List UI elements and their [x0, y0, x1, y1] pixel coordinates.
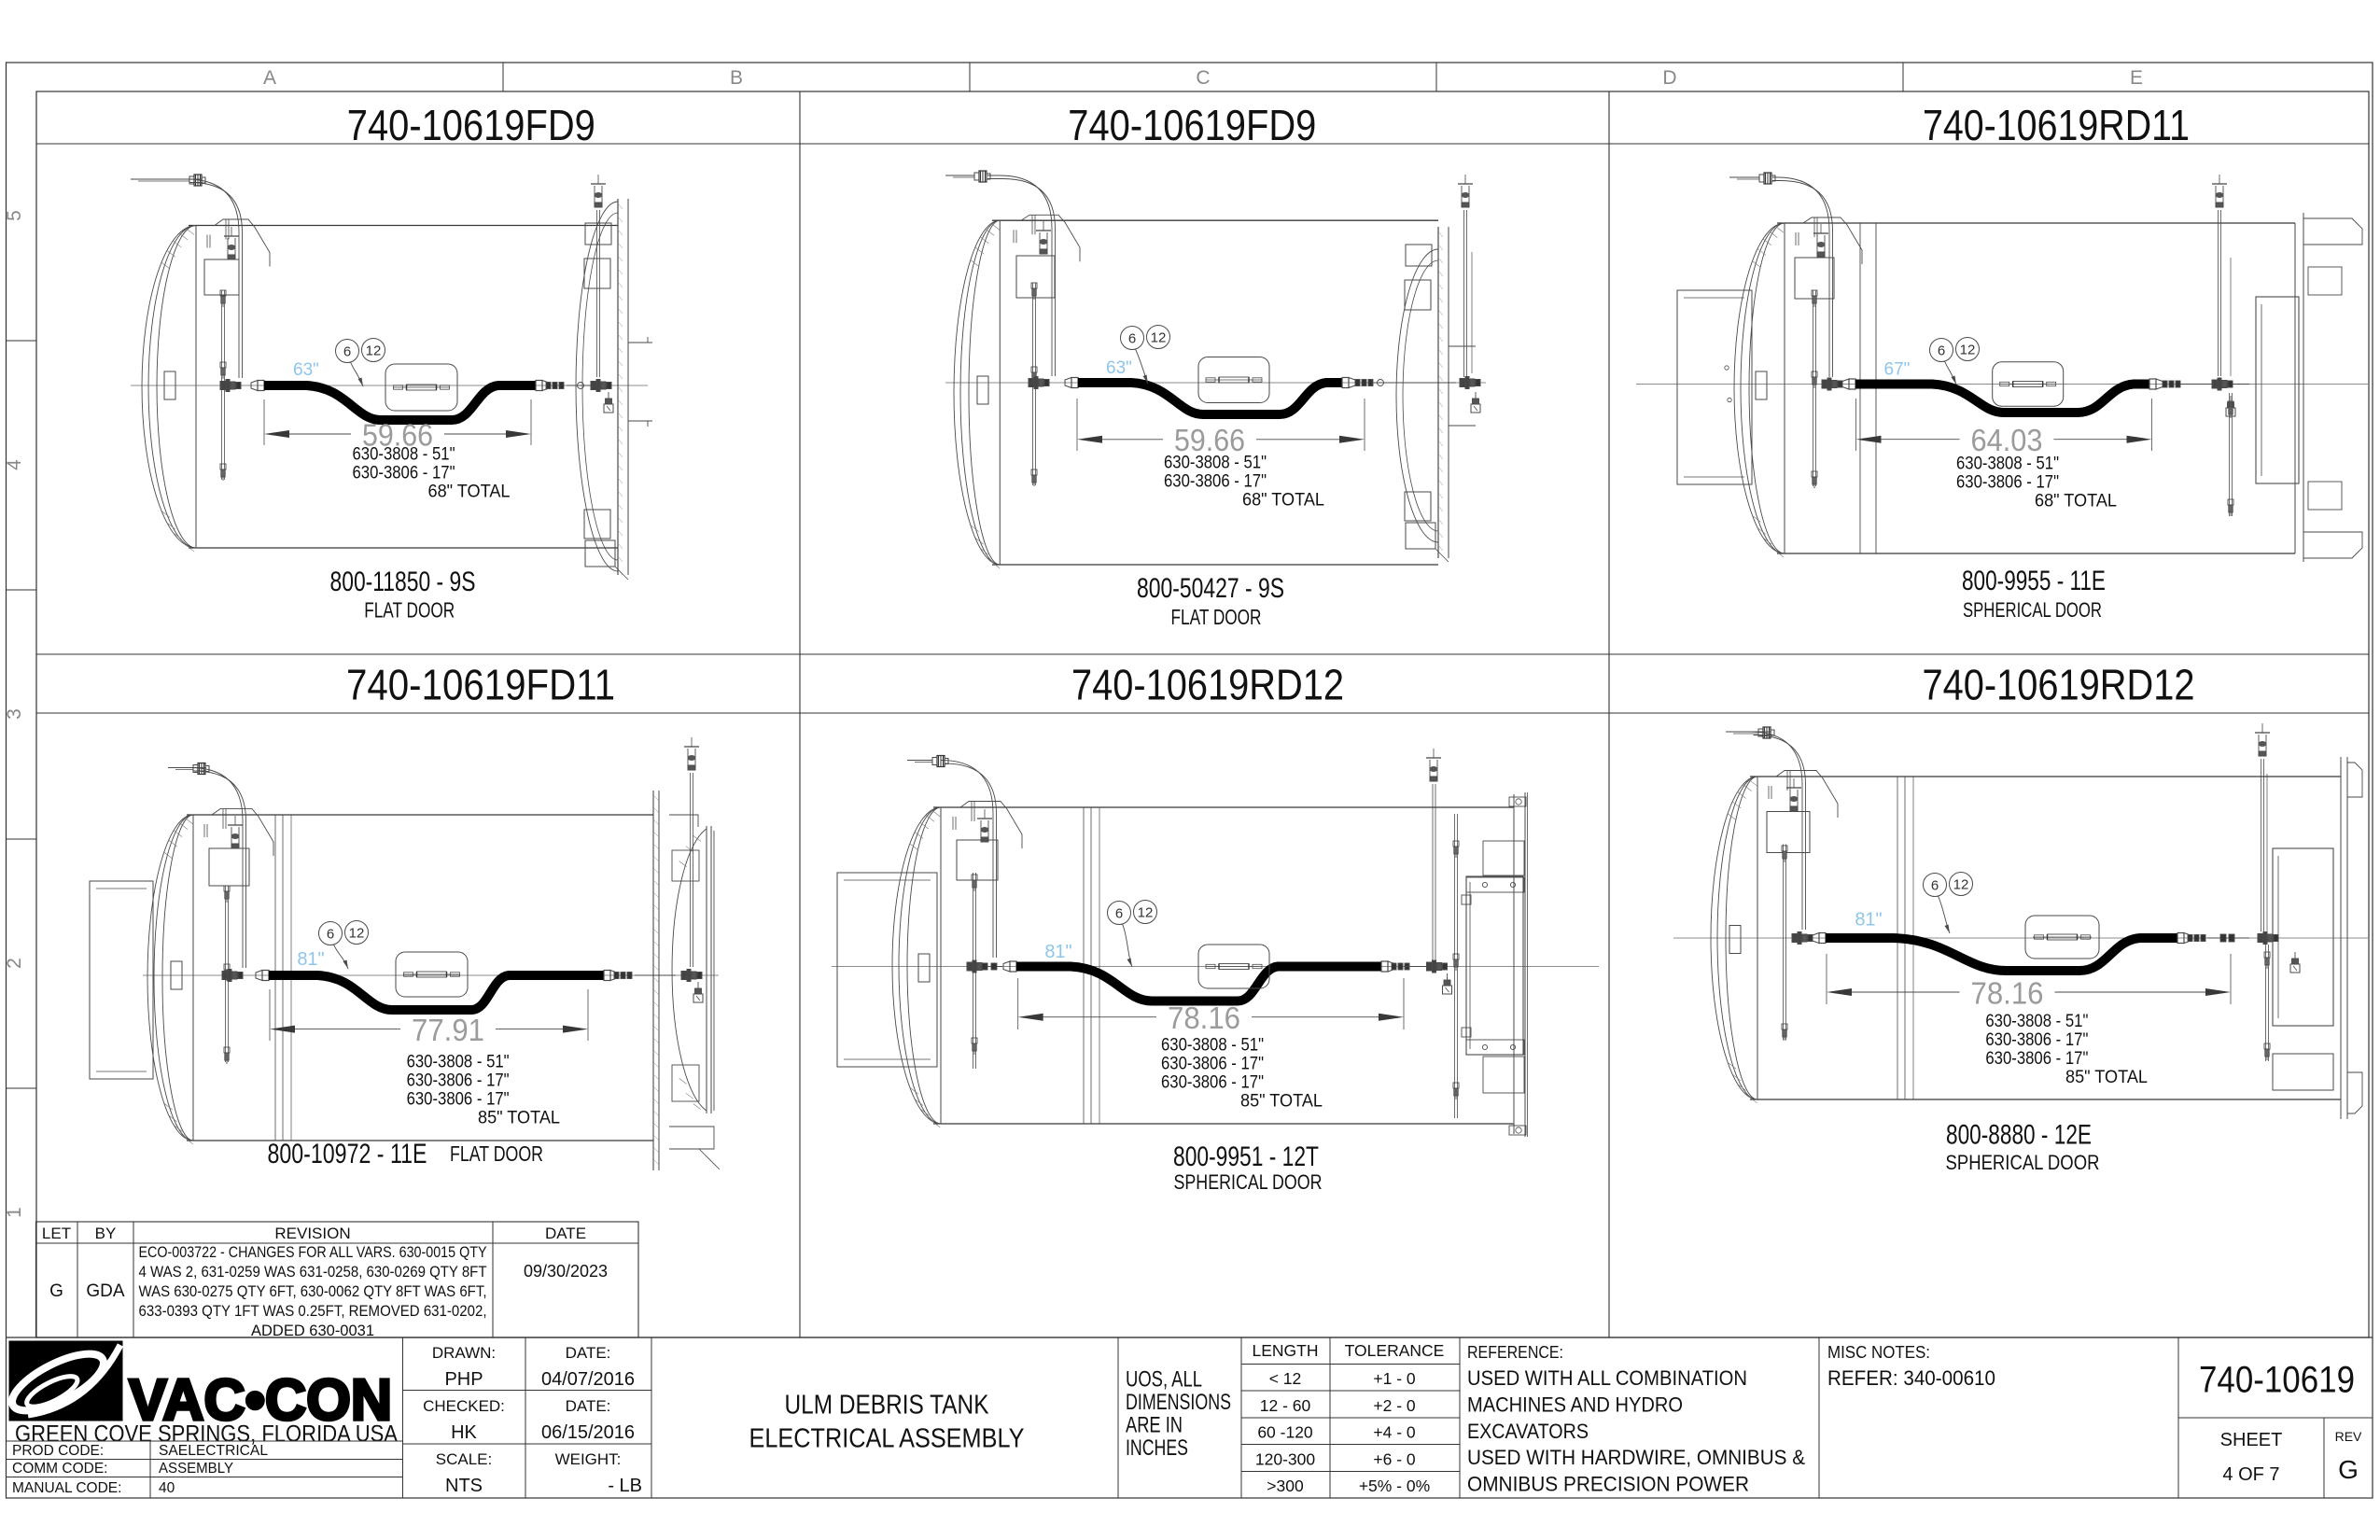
svg-text:LET: LET — [42, 1225, 71, 1242]
svg-text:CHECKED:: CHECKED: — [423, 1397, 505, 1415]
svg-text:SCALE:: SCALE: — [436, 1450, 492, 1468]
svg-text:800-8880 - 12E: 800-8880 - 12E — [1946, 1120, 2092, 1151]
svg-text:740-10619FD9: 740-10619FD9 — [1068, 101, 1316, 149]
svg-text:WAS 630-0275 QTY 6FT, 630-0062: WAS 630-0275 QTY 6FT, 630-0062 QTY 8FT W… — [139, 1283, 487, 1300]
svg-text:12 - 60: 12 - 60 — [1260, 1396, 1311, 1415]
svg-text:ELECTRICAL ASSEMBLY: ELECTRICAL ASSEMBLY — [749, 1424, 1025, 1454]
svg-text:78.16: 78.16 — [1168, 1001, 1240, 1035]
svg-text:630-3808 - 51": 630-3808 - 51" — [1956, 455, 2059, 474]
svg-text:630-3806 - 17": 630-3806 - 17" — [407, 1071, 510, 1091]
svg-text:UOS, ALL: UOS, ALL — [1126, 1367, 1202, 1393]
svg-text:630-3806 - 17": 630-3806 - 17" — [407, 1090, 510, 1110]
svg-text:INCHES: INCHES — [1126, 1435, 1188, 1461]
svg-text:630-3808 - 51": 630-3808 - 51" — [1161, 1036, 1264, 1056]
svg-text:ASSEMBLY: ASSEMBLY — [159, 1461, 233, 1477]
svg-text:6: 6 — [1128, 331, 1136, 347]
svg-text:630-3806 - 17": 630-3806 - 17" — [1985, 1030, 2088, 1050]
svg-text:DIMENSIONS: DIMENSIONS — [1126, 1390, 1231, 1415]
svg-text:630-3808 - 51": 630-3808 - 51" — [407, 1053, 510, 1072]
svg-text:12: 12 — [1151, 330, 1167, 346]
svg-text:OMNIBUS PRECISION POWER: OMNIBUS PRECISION POWER — [1467, 1473, 1749, 1496]
svg-text:04/07/2016: 04/07/2016 — [541, 1369, 635, 1390]
svg-text:800-9951 - 12T: 800-9951 - 12T — [1173, 1141, 1319, 1172]
svg-text:63": 63" — [1106, 358, 1132, 378]
svg-text:81": 81" — [297, 949, 324, 970]
svg-text:< 12: < 12 — [1269, 1369, 1302, 1388]
svg-text:USED WITH ALL COMBINATION: USED WITH ALL COMBINATION — [1467, 1366, 1747, 1390]
svg-text:A: A — [263, 67, 276, 89]
svg-text:EXCAVATORS: EXCAVATORS — [1467, 1420, 1589, 1443]
svg-text:633-0393 QTY 1FT WAS 0.25FT, R: 633-0393 QTY 1FT WAS 0.25FT, REMOVED 631… — [139, 1303, 487, 1320]
svg-text:77.91: 77.91 — [412, 1013, 484, 1047]
svg-text:FLAT DOOR: FLAT DOOR — [450, 1141, 543, 1166]
svg-text:40: 40 — [159, 1480, 175, 1496]
svg-text:WEIGHT:: WEIGHT: — [555, 1450, 622, 1468]
svg-text:67": 67" — [1884, 360, 1911, 380]
svg-text:D: D — [1662, 67, 1676, 89]
svg-text:FLAT DOOR: FLAT DOOR — [364, 598, 455, 623]
svg-text:- LB: - LB — [608, 1476, 642, 1496]
svg-text:5: 5 — [4, 210, 25, 221]
svg-text:68" TOTAL: 68" TOTAL — [428, 483, 511, 502]
svg-text:ARE IN: ARE IN — [1126, 1413, 1183, 1438]
svg-text:81": 81" — [1044, 942, 1071, 962]
svg-text:800-9955 - 11E: 800-9955 - 11E — [1962, 566, 2106, 596]
svg-text:SAELECTRICAL: SAELECTRICAL — [159, 1443, 268, 1459]
svg-text:SHEET: SHEET — [2220, 1430, 2283, 1450]
svg-text:120-300: 120-300 — [1255, 1449, 1315, 1468]
svg-text:REVISION: REVISION — [274, 1225, 350, 1242]
svg-text:PHP: PHP — [444, 1369, 483, 1390]
svg-text:REFERENCE:: REFERENCE: — [1467, 1343, 1563, 1362]
svg-text:12: 12 — [1960, 343, 1976, 358]
svg-text:800-10972 - 11E: 800-10972 - 11E — [268, 1139, 427, 1169]
svg-text:SPHERICAL DOOR: SPHERICAL DOOR — [1963, 598, 2102, 622]
svg-text:FLAT DOOR: FLAT DOOR — [1171, 605, 1262, 629]
svg-text:+1 - 0: +1 - 0 — [1373, 1369, 1416, 1388]
svg-text:85" TOTAL: 85" TOTAL — [1240, 1092, 1323, 1112]
svg-text:81": 81" — [1855, 910, 1882, 931]
svg-text:3: 3 — [4, 708, 25, 720]
svg-text:12: 12 — [1138, 905, 1154, 921]
svg-text:800-11850 - 9S: 800-11850 - 9S — [330, 567, 476, 597]
svg-text:740-10619FD11: 740-10619FD11 — [346, 661, 615, 709]
svg-text:G: G — [49, 1281, 63, 1301]
svg-text:740-10619RD12: 740-10619RD12 — [1923, 661, 2195, 709]
svg-text:MANUAL CODE:: MANUAL CODE: — [12, 1480, 121, 1496]
svg-text:LENGTH: LENGTH — [1253, 1341, 1319, 1360]
svg-text:740-10619: 740-10619 — [2199, 1360, 2355, 1401]
svg-text:DATE:: DATE: — [566, 1344, 611, 1362]
svg-text:6: 6 — [1931, 878, 1939, 894]
svg-text:B: B — [730, 67, 743, 89]
svg-text:REFER: 340-00610: REFER: 340-00610 — [1827, 1366, 1995, 1390]
svg-text:630-3806 - 17": 630-3806 - 17" — [353, 464, 455, 483]
svg-text:6: 6 — [1938, 343, 1945, 359]
svg-text:63": 63" — [293, 360, 319, 380]
svg-text:ADDED 630-0031: ADDED 630-0031 — [251, 1323, 374, 1339]
svg-text:DRAWN:: DRAWN: — [432, 1344, 496, 1362]
svg-text:800-50427 - 9S: 800-50427 - 9S — [1137, 573, 1284, 604]
svg-text:C: C — [1196, 67, 1210, 89]
svg-text:MACHINES AND HYDRO: MACHINES AND HYDRO — [1467, 1393, 1683, 1416]
svg-text:COMM CODE:: COMM CODE: — [12, 1461, 107, 1477]
svg-text:06/15/2016: 06/15/2016 — [541, 1422, 635, 1443]
svg-text:6: 6 — [327, 927, 334, 943]
svg-text:09/30/2023: 09/30/2023 — [524, 1262, 608, 1281]
svg-text:PROD CODE:: PROD CODE: — [12, 1443, 104, 1459]
svg-text:630-3808 - 51": 630-3808 - 51" — [353, 445, 455, 465]
svg-text:68" TOTAL: 68" TOTAL — [2035, 492, 2117, 511]
svg-text:+2 - 0: +2 - 0 — [1373, 1396, 1416, 1415]
svg-text:12: 12 — [349, 926, 365, 942]
svg-text:HK: HK — [451, 1422, 477, 1443]
svg-text:6: 6 — [1115, 906, 1123, 922]
svg-text:630-3808 - 51": 630-3808 - 51" — [1164, 454, 1267, 473]
svg-text:12: 12 — [1953, 877, 1969, 893]
svg-text:630-3806 - 17": 630-3806 - 17" — [1985, 1049, 2088, 1069]
svg-text:78.16: 78.16 — [1971, 975, 2044, 1010]
svg-text:TOLERANCE: TOLERANCE — [1345, 1341, 1445, 1360]
svg-text:630-3806 - 17": 630-3806 - 17" — [1956, 473, 2059, 493]
svg-text:68" TOTAL: 68" TOTAL — [1242, 491, 1324, 511]
svg-text:630-3808 - 51": 630-3808 - 51" — [1985, 1012, 2088, 1031]
svg-text:12: 12 — [366, 343, 382, 359]
svg-text:60 -120: 60 -120 — [1257, 1423, 1313, 1442]
svg-text:740-10619RD11: 740-10619RD11 — [1923, 101, 2190, 149]
svg-text:630-3806 - 17": 630-3806 - 17" — [1161, 1055, 1264, 1074]
svg-text:740-10619RD12: 740-10619RD12 — [1071, 661, 1344, 709]
svg-text:BY: BY — [95, 1225, 117, 1242]
svg-text:USED WITH HARDWIRE, OMNIBUS &: USED WITH HARDWIRE, OMNIBUS & — [1467, 1446, 1805, 1469]
svg-text:2: 2 — [4, 958, 25, 969]
svg-text:6: 6 — [343, 344, 351, 360]
svg-text:+6 - 0: +6 - 0 — [1373, 1449, 1416, 1468]
svg-text:G: G — [2338, 1455, 2359, 1484]
svg-text:64.03: 64.03 — [1971, 423, 2043, 457]
svg-text:+5% - 0%: +5% - 0% — [1359, 1477, 1430, 1495]
svg-text:630-3806 - 17": 630-3806 - 17" — [1164, 472, 1267, 492]
svg-text:4 WAS 2, 631-0259 WAS 631-0258: 4 WAS 2, 631-0259 WAS 631-0258, 630-0269… — [139, 1264, 487, 1281]
svg-text:85" TOTAL: 85" TOTAL — [478, 1109, 560, 1128]
svg-text:SPHERICAL DOOR: SPHERICAL DOOR — [1946, 1151, 2100, 1174]
svg-text:GDA: GDA — [86, 1281, 125, 1301]
svg-text:E: E — [2130, 67, 2143, 89]
svg-text:ULM DEBRIS TANK: ULM DEBRIS TANK — [785, 1390, 990, 1420]
svg-text:DATE: DATE — [545, 1225, 586, 1242]
svg-text:4: 4 — [4, 459, 25, 470]
svg-text:>300: >300 — [1267, 1477, 1304, 1495]
svg-text:MISC NOTES:: MISC NOTES: — [1827, 1343, 1930, 1362]
svg-text:630-3806 - 17": 630-3806 - 17" — [1161, 1073, 1264, 1093]
svg-text:+4 - 0: +4 - 0 — [1373, 1423, 1416, 1442]
svg-text:740-10619FD9: 740-10619FD9 — [347, 101, 595, 149]
svg-text:4 OF 7: 4 OF 7 — [2222, 1464, 2279, 1485]
svg-text:NTS: NTS — [445, 1476, 483, 1496]
svg-text:SPHERICAL DOOR: SPHERICAL DOOR — [1174, 1170, 1323, 1194]
svg-text:1: 1 — [4, 1207, 25, 1218]
svg-text:ECO-003722 - CHANGES FOR ALL V: ECO-003722 - CHANGES FOR ALL VARS. 630-0… — [139, 1244, 487, 1261]
svg-text:REV: REV — [2335, 1429, 2362, 1444]
svg-text:85" TOTAL: 85" TOTAL — [2065, 1068, 2148, 1087]
svg-text:DATE:: DATE: — [566, 1397, 611, 1415]
